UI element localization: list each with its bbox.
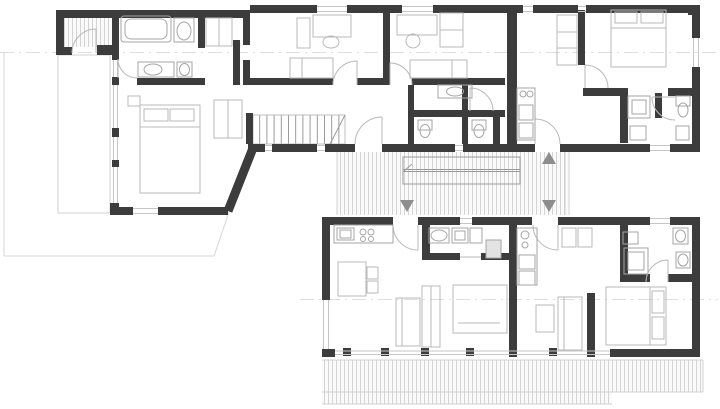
shower-symbol — [624, 248, 648, 274]
daybed-symbol — [453, 285, 507, 333]
coffee-table-symbol — [536, 305, 554, 332]
north-wing-diagonal-wall — [228, 148, 253, 211]
interior-stair-symbol — [253, 115, 345, 144]
shower-symbol — [628, 96, 650, 118]
washbasin-symbol — [138, 62, 174, 77]
double-bed-symbol — [140, 105, 200, 193]
closet-symbol — [206, 18, 232, 46]
kitchen-counter-symbol — [334, 225, 393, 243]
wardrobe-symbol — [557, 15, 577, 65]
toilet-symbol — [418, 120, 432, 138]
floor-plan-page — [0, 0, 720, 409]
washbasin-symbol — [630, 126, 646, 140]
single-bed-symbol — [410, 60, 467, 78]
floor-plan-canvas — [0, 0, 720, 409]
cabinet-symbol — [470, 228, 482, 243]
double-bed-symbol — [606, 287, 666, 345]
west-terrace-deck — [58, 55, 110, 213]
sofa-symbol — [558, 297, 582, 350]
toilet-symbol — [676, 96, 690, 117]
desk-symbol — [397, 15, 437, 48]
kitchenette-symbol — [517, 88, 535, 140]
sofa-symbol — [396, 298, 420, 346]
toilet-symbol — [472, 120, 486, 138]
nightstand-symbol — [128, 96, 140, 106]
double-bed-symbol — [611, 10, 666, 67]
toilet-symbol — [673, 228, 688, 244]
washbasin-symbol — [676, 252, 690, 268]
porch-deck — [64, 18, 112, 47]
wardrobe-symbol — [214, 100, 242, 138]
bathtub-symbol — [121, 16, 171, 42]
shelf-symbol — [297, 18, 310, 48]
shower-symbol — [486, 240, 501, 258]
dining-table-symbol — [338, 262, 378, 296]
shelf-symbol — [562, 228, 592, 247]
sideboard-symbol — [422, 286, 440, 347]
single-bed-symbol — [290, 58, 333, 78]
cabinet-symbol — [440, 13, 463, 47]
toilet-symbol — [177, 62, 192, 77]
washing-machine-symbol — [452, 228, 468, 243]
site-boundary — [4, 53, 251, 256]
south-terrace-deck — [322, 360, 703, 404]
kitchen-counter-symbol — [517, 228, 537, 285]
desk-symbol — [313, 15, 351, 48]
toilet-symbol — [174, 18, 194, 42]
washbasin-symbol — [676, 126, 689, 140]
washbasin-symbol — [429, 228, 449, 243]
